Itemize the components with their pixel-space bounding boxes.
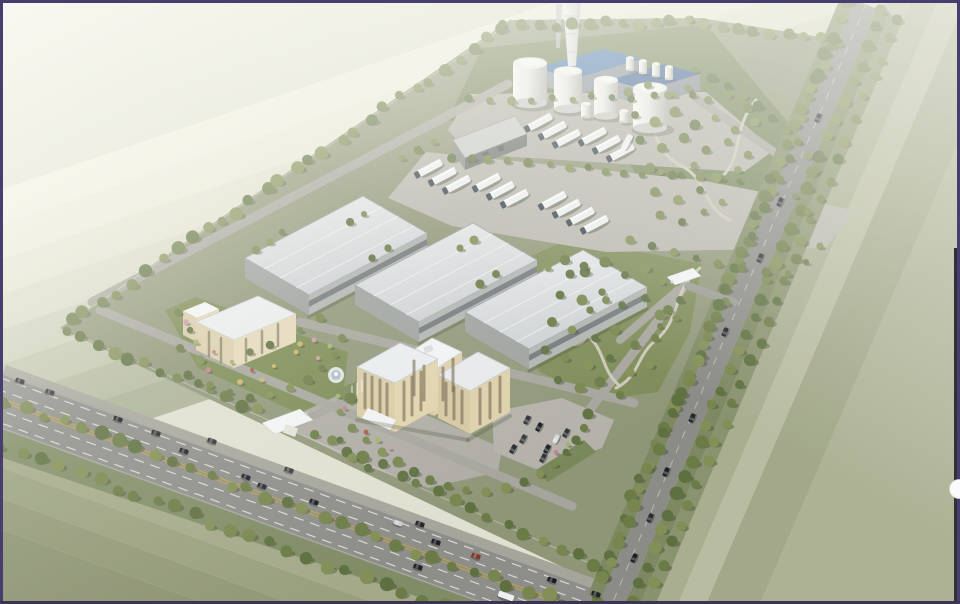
atmospheric-haze bbox=[0, 0, 960, 604]
frame-border-left bbox=[0, 0, 3, 604]
aerial-render-canvas bbox=[0, 0, 960, 604]
frame-border-top bbox=[0, 0, 960, 3]
render-viewport bbox=[0, 0, 960, 604]
